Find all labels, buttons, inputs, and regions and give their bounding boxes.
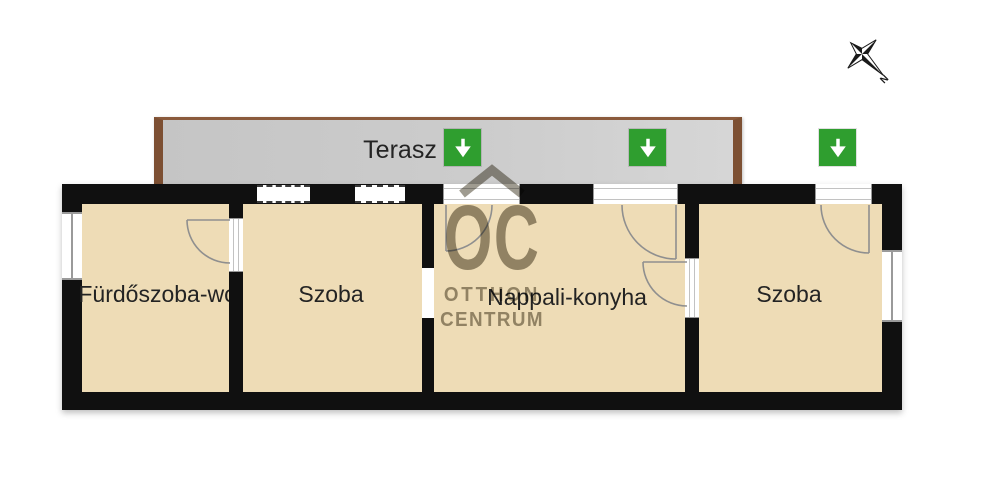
entrance-arrow-icon-1 [444,129,481,166]
compass-north-label: N [878,73,891,86]
window-terrace-1 [257,185,310,203]
floor-plan-canvas: Terasz Fürdőszoba-wc Szoba Nappali-konyh… [0,0,984,500]
watermark-monogram: OC [444,192,541,284]
window-terrace-2 [355,185,405,203]
north-compass-icon: N [834,24,902,96]
room-label-bathroom-wc: Fürdőszoba-wc [78,281,235,308]
passage-room-living [422,268,434,318]
door-living-room-right [685,258,699,318]
terrace-label: Terasz [363,136,437,165]
watermark-name-line1: OTTHON [444,284,540,307]
room-label-room-right: Szoba [756,281,821,308]
door-terrace-living-2 [593,184,678,204]
window-left-wall [62,212,82,280]
down-arrow-icon [450,135,476,161]
down-arrow-icon [825,135,851,161]
entrance-arrow-icon-3 [819,129,856,166]
door-room-right-entry [815,184,872,204]
room-label-room-left: Szoba [298,281,363,308]
watermark-name-line2: CENTRUM [440,309,544,332]
door-bathroom [229,218,243,272]
entrance-arrow-icon-2 [629,129,666,166]
window-right-wall [882,250,902,322]
down-arrow-icon [635,135,661,161]
